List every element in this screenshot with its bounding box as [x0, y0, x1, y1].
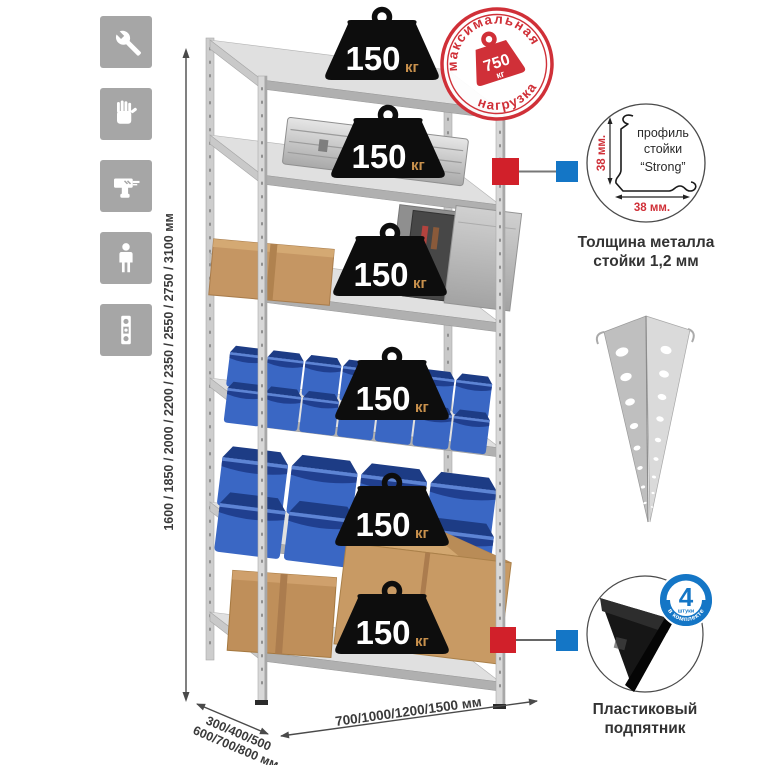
profile-label-1: профиль: [637, 126, 689, 140]
load-value: 150: [353, 256, 408, 293]
load-value: 150: [355, 614, 410, 651]
foot-caption-1: Пластиковый: [593, 701, 698, 718]
included-badge: 4 штуки в комплекте: [659, 573, 713, 627]
badge-count-unit: штуки: [678, 609, 695, 615]
angle-post-image: [597, 316, 694, 522]
profile-dim-horizontal: 38 мм.: [634, 202, 670, 214]
cardboard-box-shelf3: [209, 239, 334, 305]
load-value: 150: [355, 380, 410, 417]
load-unit: кг: [405, 59, 419, 76]
load-unit: кг: [415, 525, 429, 542]
height-dimension-label: 1600 / 1850 / 2000 / 2200 / 2350 / 2550 …: [162, 213, 176, 530]
plastic-foot-detail: 4 штуки в комплекте Пластиковый подпятни…: [587, 573, 713, 737]
profile-caption-2: стойки 1,2 мм: [593, 253, 698, 270]
rack-illustration: 150 кг 150 кг 150 кг 150 кг 150 кг: [0, 0, 765, 765]
post-profile-detail: 38 мм. 38 мм. профиль стойки “Strong” То…: [578, 104, 715, 270]
profile-dim-vertical: 38 мм.: [596, 135, 608, 171]
blue-marker: [556, 161, 578, 182]
badge-count: 4: [679, 582, 694, 612]
foot-callout-marker: [490, 627, 578, 653]
profile-label-2: стойки: [644, 142, 682, 156]
load-value: 150: [345, 40, 400, 77]
red-marker: [492, 158, 519, 185]
profile-label-3: “Strong”: [640, 160, 685, 174]
height-dimension: 1600 / 1850 / 2000 / 2200 / 2350 / 2550 …: [162, 48, 190, 702]
depth-dimension: 300/400/500 600/700/800 мм: [191, 700, 286, 765]
load-unit: кг: [415, 633, 429, 650]
width-dimension-label: 700/1000/1200/1500 мм: [334, 694, 482, 729]
load-value: 150: [351, 138, 406, 175]
load-badge: 150 кг: [331, 108, 445, 179]
load-unit: кг: [415, 399, 429, 416]
profile-callout-marker: [492, 158, 578, 185]
red-marker: [490, 627, 516, 653]
foot-caption-2: подпятник: [604, 720, 685, 737]
plastic-foot: [255, 700, 268, 705]
load-unit: кг: [413, 275, 427, 292]
product-infographic: 150 кг 150 кг 150 кг 150 кг 150 кг: [0, 0, 765, 765]
load-unit: кг: [411, 157, 425, 174]
load-value: 150: [355, 506, 410, 543]
blue-marker: [556, 630, 578, 651]
profile-caption-1: Толщина металла: [578, 234, 715, 251]
load-badge: 150 кг: [325, 10, 439, 81]
